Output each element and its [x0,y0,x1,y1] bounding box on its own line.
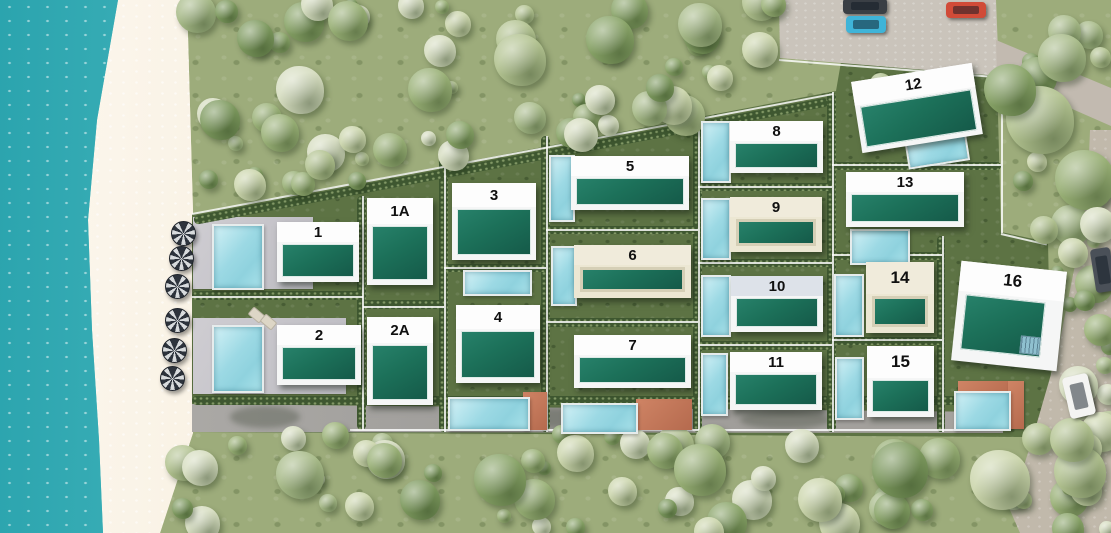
boundary-line [698,262,832,264]
villa-14-roof [872,296,928,327]
tree [707,65,733,91]
villa-13-roof [851,194,959,222]
villa-10-label: 10 [731,276,823,296]
tree [514,102,546,134]
villa-7: 7 [574,335,691,388]
tree [339,126,366,153]
tree [984,64,1036,116]
villa-13: 13 [846,172,964,227]
pool-3 [463,270,532,296]
hedge [363,300,445,309]
pool-14 [834,274,864,337]
villa-6: 6 [574,245,691,298]
tree [200,100,240,140]
tree [474,454,526,506]
tree [345,492,374,521]
tree [1099,521,1111,533]
boundary-line [832,339,942,341]
tree [1058,238,1088,268]
beach-umbrella-icon [165,308,190,333]
tree [348,172,366,190]
villa-9-roof [736,219,816,246]
villa-10-roof [736,298,818,327]
tree [182,450,218,486]
tree [557,435,594,472]
pool-13 [850,229,910,265]
villa-7-roof [579,357,686,383]
tree [494,34,546,86]
tree [237,20,274,57]
boundary-line [546,229,698,231]
boundary-line [698,186,832,188]
tree [798,478,842,522]
tree [564,118,598,152]
tree [199,170,218,189]
villa-3-label: 3 [452,183,536,207]
villa-10: 10 [731,276,823,332]
tree [228,436,247,455]
boundary-line [698,110,700,432]
pool-7 [561,403,638,434]
villa-6-label: 6 [574,245,691,265]
villa-6-roof [580,267,685,292]
car-red [946,2,986,18]
tree [608,477,637,506]
pool-8 [701,121,731,183]
villa-4-label: 4 [456,305,540,329]
beach-umbrella-icon [160,366,185,391]
villa-5-roof [576,178,684,205]
tree [598,115,619,136]
pool-11 [701,353,728,416]
tree [674,444,726,496]
tree [445,11,471,37]
tree [751,466,776,491]
tree [1038,34,1086,82]
tree [678,3,722,47]
tree [408,68,452,112]
villa-15-label: 15 [867,346,934,378]
tree [172,498,193,519]
solar-panel-icon [1019,335,1041,355]
tree [234,169,266,201]
tree [665,58,683,76]
tree [261,114,299,152]
villa-9: 9 [730,197,822,252]
villa-8-label: 8 [730,121,823,141]
terracotta-deck [636,399,692,430]
tree [1030,216,1058,244]
tree [276,451,324,499]
tree [228,136,243,151]
villa-16: 16 [951,261,1067,372]
villa-1a: 1A [367,198,433,285]
tree [566,518,585,533]
villa-8-roof [735,143,818,168]
tree-shadow [740,411,830,429]
tree [373,133,407,167]
boundary-line [546,136,548,432]
tree [1027,152,1047,172]
tree [1096,357,1111,374]
tree [215,0,238,23]
villa-15-roof [872,380,929,412]
tree [421,131,436,146]
car-cyan [846,16,886,33]
tree [872,442,928,498]
villa-2-label: 2 [277,325,361,345]
tree [1050,418,1094,462]
tree [355,152,369,166]
site-plan: 1 1A 2 2A 3 4 5 6 7 8 9 10 11 12 13 14 1… [0,0,1111,533]
tree [400,480,440,520]
beach-umbrella-icon [171,221,196,246]
boundary-line [444,267,546,269]
pool-16 [954,391,1011,431]
tree [1013,171,1033,191]
tree [319,494,337,512]
tree-shadow [230,406,300,428]
tree [281,426,306,451]
villa-8: 8 [730,121,823,173]
pool-9 [701,198,731,260]
villa-11: 11 [730,352,822,410]
boundary-line [942,236,944,432]
pool-4 [448,397,530,431]
villa-2-roof [282,347,356,380]
tree [646,74,674,102]
villa-3: 3 [452,183,536,260]
tree [1090,47,1111,68]
tree [585,85,615,115]
boundary-line [444,150,446,432]
tree [276,66,324,114]
villa-7-label: 7 [574,335,691,355]
villa-4-roof [461,331,535,378]
villa-1-roof [282,244,354,277]
tree [742,32,778,68]
beach-umbrella-icon [162,338,187,363]
tree [658,499,677,518]
tree [785,429,819,463]
tree [435,0,449,14]
tree [521,449,545,473]
villa-2a-roof [372,345,428,400]
villa-15: 15 [867,346,934,417]
boundary-line [546,321,698,323]
tree [874,493,910,529]
villa-1-label: 1 [277,222,359,242]
pool-1 [212,224,264,290]
villa-3-roof [457,209,531,255]
tree [586,16,634,64]
tree [424,464,442,482]
villa-1a-roof [372,226,428,280]
villa-13-label: 13 [846,172,964,192]
villa-11-label: 11 [730,352,822,372]
villa-14: 14 [866,262,934,333]
tree [398,0,424,19]
villa-14-label: 14 [866,262,934,294]
boundary-line [192,296,363,298]
villa-1: 1 [277,222,359,282]
pool-2 [212,325,264,393]
boundary-line [698,344,832,346]
tree [424,35,456,67]
villa-2: 2 [277,325,361,385]
villa-5-label: 5 [571,156,689,176]
villa-9-label: 9 [730,197,822,217]
hedge [698,341,833,350]
villa-1a-label: 1A [367,198,433,224]
tree [1074,290,1095,311]
car-dark [843,0,887,14]
boundary-line [362,196,364,430]
tree [328,1,368,41]
tree [446,121,474,149]
beach-umbrella-icon [165,274,190,299]
tree [911,499,933,521]
villa-2a-label: 2A [367,317,433,343]
tree [497,509,511,523]
boundary-line [363,306,444,308]
villa-2a: 2A [367,317,433,405]
tree [305,150,335,180]
villa-5: 5 [571,156,689,210]
tree [367,443,402,478]
tree [1055,150,1111,210]
pool-10 [701,275,731,337]
beach-umbrella-icon [169,246,194,271]
tree [322,422,349,449]
villa-11-roof [735,374,817,405]
tree [970,450,1030,510]
villa-4: 4 [456,305,540,383]
pool-15 [835,357,864,420]
boundary-line [832,92,834,432]
hedge [546,318,699,327]
